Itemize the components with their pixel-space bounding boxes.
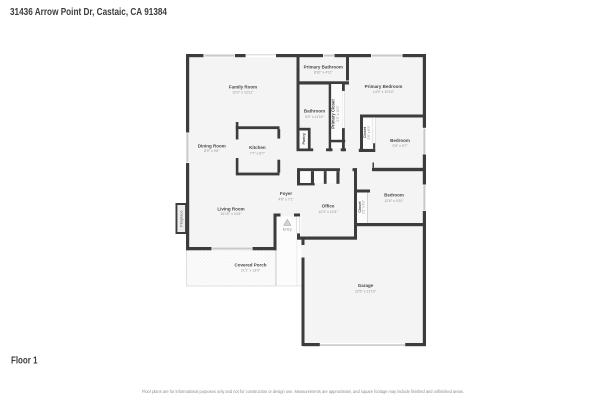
svg-text:4'6" x 7'1": 4'6" x 7'1"	[278, 197, 294, 201]
svg-text:Bedroom: Bedroom	[384, 193, 404, 198]
svg-text:5'5" x 11'10": 5'5" x 11'10"	[305, 115, 325, 119]
svg-text:Garage: Garage	[358, 283, 374, 288]
svg-text:Fireplace: Fireplace	[178, 210, 183, 227]
svg-text:22'5" x 21'10": 22'5" x 21'10"	[355, 289, 377, 293]
svg-text:Bedroom: Bedroom	[390, 138, 410, 143]
svg-text:Primary Bathroom: Primary Bathroom	[304, 64, 343, 69]
svg-text:Family Room: Family Room	[229, 84, 257, 89]
svg-text:2'8" x 6'9": 2'8" x 6'9"	[367, 126, 371, 140]
svg-text:2'1" x 6'9": 2'1" x 6'9"	[362, 200, 366, 214]
svg-text:Floor 1: Floor 1	[11, 356, 38, 367]
svg-text:10'3" x 12'4": 10'3" x 12'4"	[318, 210, 338, 214]
svg-text:21'1" x 13'9": 21'1" x 13'9"	[241, 269, 261, 273]
svg-text:2'2" x 10'2": 2'2" x 10'2"	[336, 105, 340, 122]
svg-text:Living Room: Living Room	[217, 207, 244, 212]
svg-text:12'6" x 9'10": 12'6" x 9'10"	[384, 199, 404, 203]
svg-text:Dining Room: Dining Room	[198, 143, 226, 148]
svg-text:Pantry: Pantry	[302, 132, 306, 144]
svg-text:Covered Porch: Covered Porch	[234, 263, 266, 268]
svg-text:14'9" x 10'10": 14'9" x 10'10"	[373, 90, 395, 94]
svg-text:9'5" x 9'7": 9'5" x 9'7"	[392, 144, 408, 148]
svg-text:15'10" x 13'4": 15'10" x 13'4"	[220, 212, 242, 216]
svg-text:8'10" x 4'11": 8'10" x 4'11"	[314, 71, 334, 75]
svg-text:Foyer: Foyer	[280, 191, 293, 196]
svg-text:Entry: Entry	[283, 227, 292, 231]
svg-text:20'2" x 12'11": 20'2" x 12'11"	[233, 91, 255, 95]
svg-text:Kitchen: Kitchen	[249, 145, 266, 150]
svg-text:Office: Office	[322, 204, 335, 209]
svg-text:Floor plans are for informatio: Floor plans are for informational purpos…	[142, 389, 464, 394]
svg-text:Primary Closet: Primary Closet	[331, 99, 336, 129]
svg-text:7'7" x 8'7": 7'7" x 8'7"	[250, 151, 266, 155]
svg-text:31436 Arrow Point Dr, Castaic,: 31436 Arrow Point Dr, Castaic, CA 91384	[10, 6, 167, 18]
svg-text:Bathroom: Bathroom	[304, 109, 325, 114]
svg-text:Primary Bedroom: Primary Bedroom	[365, 84, 403, 89]
svg-text:8'9" x 9'6": 8'9" x 9'6"	[204, 149, 220, 153]
